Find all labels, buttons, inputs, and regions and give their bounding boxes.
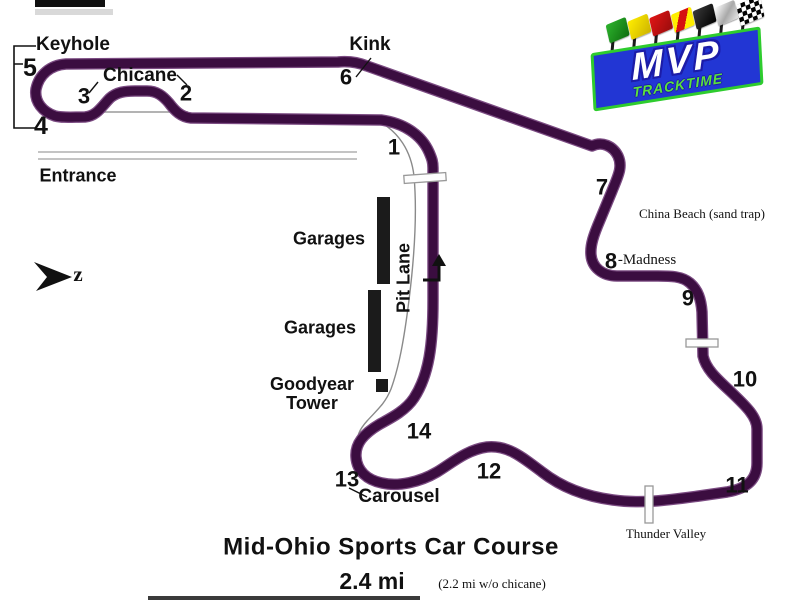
china-beach-label: China Beach (sand trap) bbox=[639, 207, 765, 221]
turn-label-11: 11 bbox=[725, 473, 748, 496]
turn-label-13: 13 bbox=[335, 467, 359, 490]
turn-label-1: 1 bbox=[388, 135, 400, 158]
turn-label-3: 3 bbox=[78, 84, 90, 107]
carousel-label: Carousel bbox=[358, 487, 439, 507]
turn-label-10: 10 bbox=[733, 367, 757, 390]
garages-lower-label: Garages bbox=[284, 319, 356, 338]
thunder-valley-label: Thunder Valley bbox=[626, 527, 706, 541]
turn-label-4: 4 bbox=[34, 113, 48, 139]
mvp-tracktime-logo: MVP TRACKTIME bbox=[583, 0, 783, 120]
kink-label: Kink bbox=[349, 35, 390, 55]
goodyear-tower-label: Goodyear Tower bbox=[270, 375, 354, 413]
turn-label-2: 2 bbox=[180, 81, 192, 104]
start-finish-line bbox=[404, 173, 446, 184]
course-title: Mid-Ohio Sports Car Course bbox=[223, 534, 559, 559]
turn-label-12: 12 bbox=[477, 459, 501, 482]
goodyear-tower-line1: Goodyear bbox=[270, 375, 354, 394]
goodyear-tower-block bbox=[376, 379, 388, 392]
compass-arrow-icon bbox=[34, 262, 72, 291]
garage-block-lower bbox=[368, 290, 381, 372]
turn-label-9: 9 bbox=[682, 286, 694, 309]
chicane-tick-left bbox=[89, 82, 98, 93]
bottom-edge-artifact bbox=[148, 596, 420, 600]
course-distance: 2.4 mi bbox=[339, 569, 404, 593]
turn-label-8: 8 bbox=[605, 249, 617, 272]
chicane-label: Chicane bbox=[103, 66, 177, 86]
track-map-page: 1 2 3 4 5 6 7 8 9 10 11 12 13 14 Keyhole… bbox=[0, 0, 800, 600]
turn-label-7: 7 bbox=[596, 175, 608, 198]
keyhole-label: Keyhole bbox=[36, 35, 110, 55]
bridge-marker bbox=[686, 339, 718, 347]
pit-lane-label: Pit Lane bbox=[395, 243, 414, 313]
course-distance-note: (2.2 mi w/o chicane) bbox=[438, 577, 546, 591]
turn-label-5: 5 bbox=[23, 55, 37, 81]
compass-letter: z bbox=[73, 263, 82, 285]
madness-label: -Madness bbox=[618, 253, 676, 269]
garage-block-upper bbox=[377, 197, 390, 284]
turn-label-6: 6 bbox=[340, 65, 352, 88]
entrance-label: Entrance bbox=[39, 167, 116, 186]
top-edge-artifact bbox=[35, 0, 105, 7]
goodyear-tower-line2: Tower bbox=[270, 394, 354, 413]
garages-upper-label: Garages bbox=[293, 230, 365, 249]
thunder-valley-bridge-marker bbox=[645, 486, 653, 523]
turn-label-14: 14 bbox=[407, 419, 431, 442]
entrance-road bbox=[38, 152, 357, 159]
top-edge-artifact-faint bbox=[35, 9, 113, 15]
